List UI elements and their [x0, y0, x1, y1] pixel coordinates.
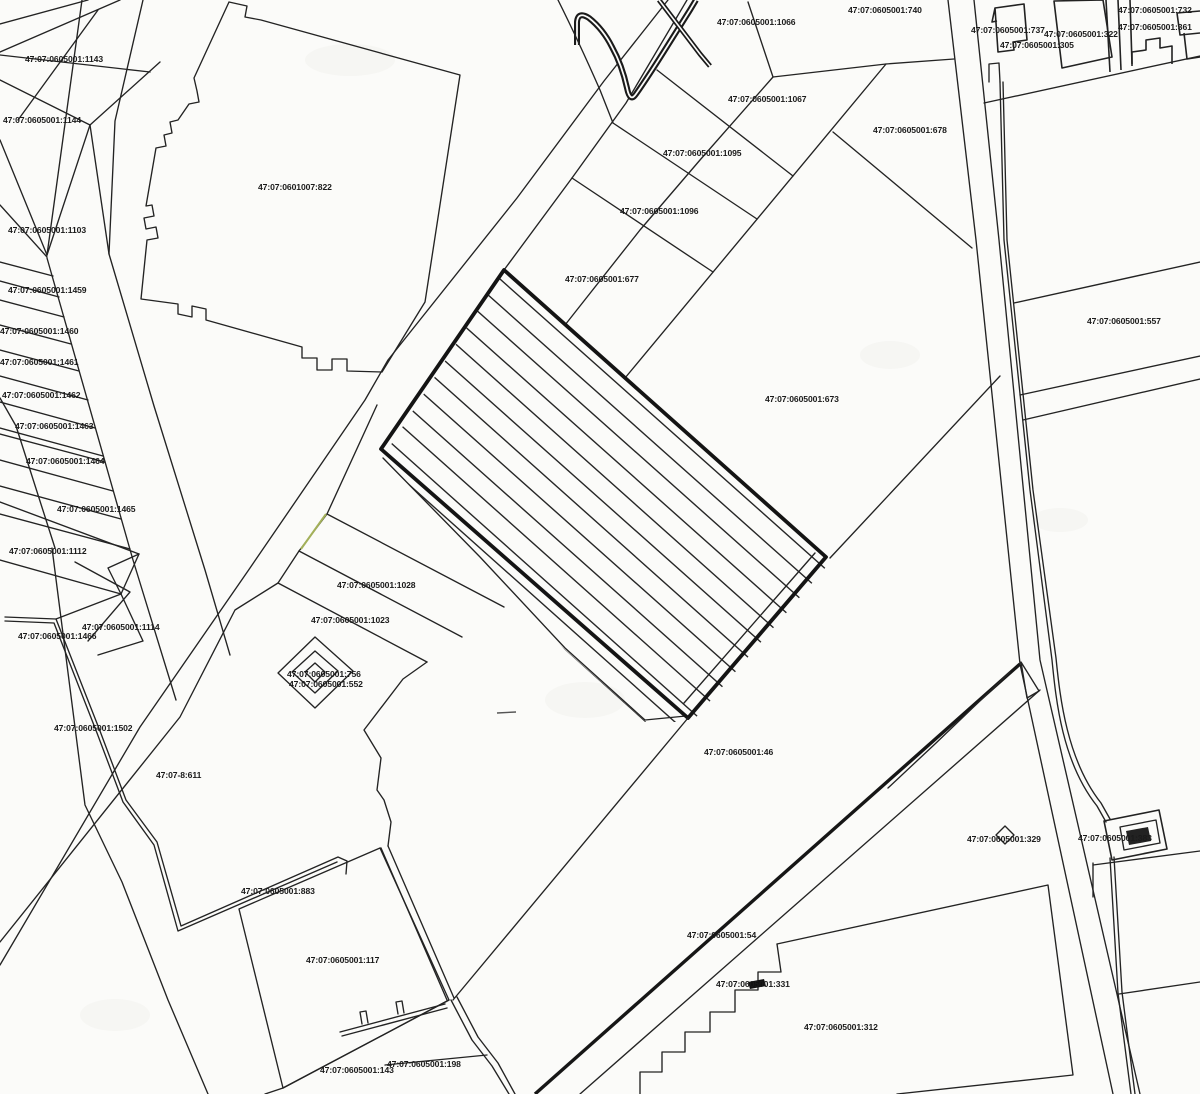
svg-text:47:07:0605001:305: 47:07:0605001:305	[1000, 40, 1074, 50]
svg-text:47:07:0605001:329: 47:07:0605001:329	[967, 834, 1041, 844]
svg-text:47:07-8:611: 47:07-8:611	[156, 770, 202, 780]
svg-text:47:07:0605001:1067: 47:07:0605001:1067	[728, 94, 807, 104]
svg-text:47:07:0605001:1463: 47:07:0605001:1463	[15, 421, 94, 431]
svg-text:47:07:0605001:673: 47:07:0605001:673	[765, 394, 839, 404]
svg-text:47:07:0605001:1460: 47:07:0605001:1460	[0, 326, 79, 336]
svg-text:47:07:0605001:54: 47:07:0605001:54	[687, 930, 756, 940]
svg-text:47:07:0605001:1465: 47:07:0605001:1465	[57, 504, 136, 514]
svg-text:47:07:0605001:552: 47:07:0605001:552	[289, 679, 363, 689]
svg-text:47:07:0605001:557: 47:07:0605001:557	[1087, 316, 1161, 326]
svg-text:47:07:0605001:1095: 47:07:0605001:1095	[663, 148, 742, 158]
svg-text:47:07:0605001:1143: 47:07:0605001:1143	[25, 54, 103, 64]
svg-text:47:07:0605001:1103: 47:07:0605001:1103	[8, 225, 86, 235]
svg-text:47:07:0605001:383: 47:07:0605001:383	[1078, 833, 1152, 843]
svg-text:47:07:0605001:198: 47:07:0605001:198	[387, 1059, 461, 1069]
svg-text:47:07:0605001:46: 47:07:0605001:46	[704, 747, 773, 757]
svg-text:47:07:0605001:740: 47:07:0605001:740	[848, 5, 922, 15]
svg-text:47:07:0605001:1023: 47:07:0605001:1023	[311, 615, 390, 625]
svg-text:47:07:0605001:756: 47:07:0605001:756	[287, 669, 361, 679]
svg-text:47:07:0605001:1144: 47:07:0605001:1144	[3, 115, 81, 125]
svg-text:47:07:0605001:1464: 47:07:0605001:1464	[26, 456, 105, 466]
svg-text:47:07:0605001:331: 47:07:0605001:331	[716, 979, 790, 989]
svg-text:47:07:0605001:732: 47:07:0605001:732	[1118, 5, 1192, 15]
svg-text:47:07:0605001:678: 47:07:0605001:678	[873, 125, 947, 135]
svg-text:47:07:0605001:1459: 47:07:0605001:1459	[8, 285, 87, 295]
svg-text:47:07:0605001:1466: 47:07:0605001:1466	[18, 631, 97, 641]
svg-text:47:07:0601007:822: 47:07:0601007:822	[258, 182, 332, 192]
svg-text:47:07:0605001:312: 47:07:0605001:312	[804, 1022, 878, 1032]
svg-text:47:07:0605001:322: 47:07:0605001:322	[1044, 29, 1118, 39]
svg-text:47:07:0605001:1066: 47:07:0605001:1066	[717, 17, 796, 27]
svg-text:47:07:0605001:1028: 47:07:0605001:1028	[337, 580, 416, 590]
svg-text:47:07:0605001:1461: 47:07:0605001:1461	[0, 357, 79, 367]
svg-text:47:07:0605001:1112: 47:07:0605001:1112	[9, 546, 87, 556]
svg-text:47:07:0605001:143: 47:07:0605001:143	[320, 1065, 394, 1075]
svg-text:47:07:0605001:677: 47:07:0605001:677	[565, 274, 639, 284]
svg-text:47:07:0605001:361: 47:07:0605001:361	[1118, 22, 1192, 32]
svg-text:47:07:0605001:737: 47:07:0605001:737	[971, 25, 1045, 35]
svg-text:47:07:0605001:883: 47:07:0605001:883	[241, 886, 315, 896]
svg-text:47:07:0605001:1502: 47:07:0605001:1502	[54, 723, 133, 733]
svg-text:47:07:0605001:1096: 47:07:0605001:1096	[620, 206, 699, 216]
svg-text:47:07:0605001:1462: 47:07:0605001:1462	[2, 390, 81, 400]
svg-text:47:07:0605001:117: 47:07:0605001:117	[306, 955, 380, 965]
